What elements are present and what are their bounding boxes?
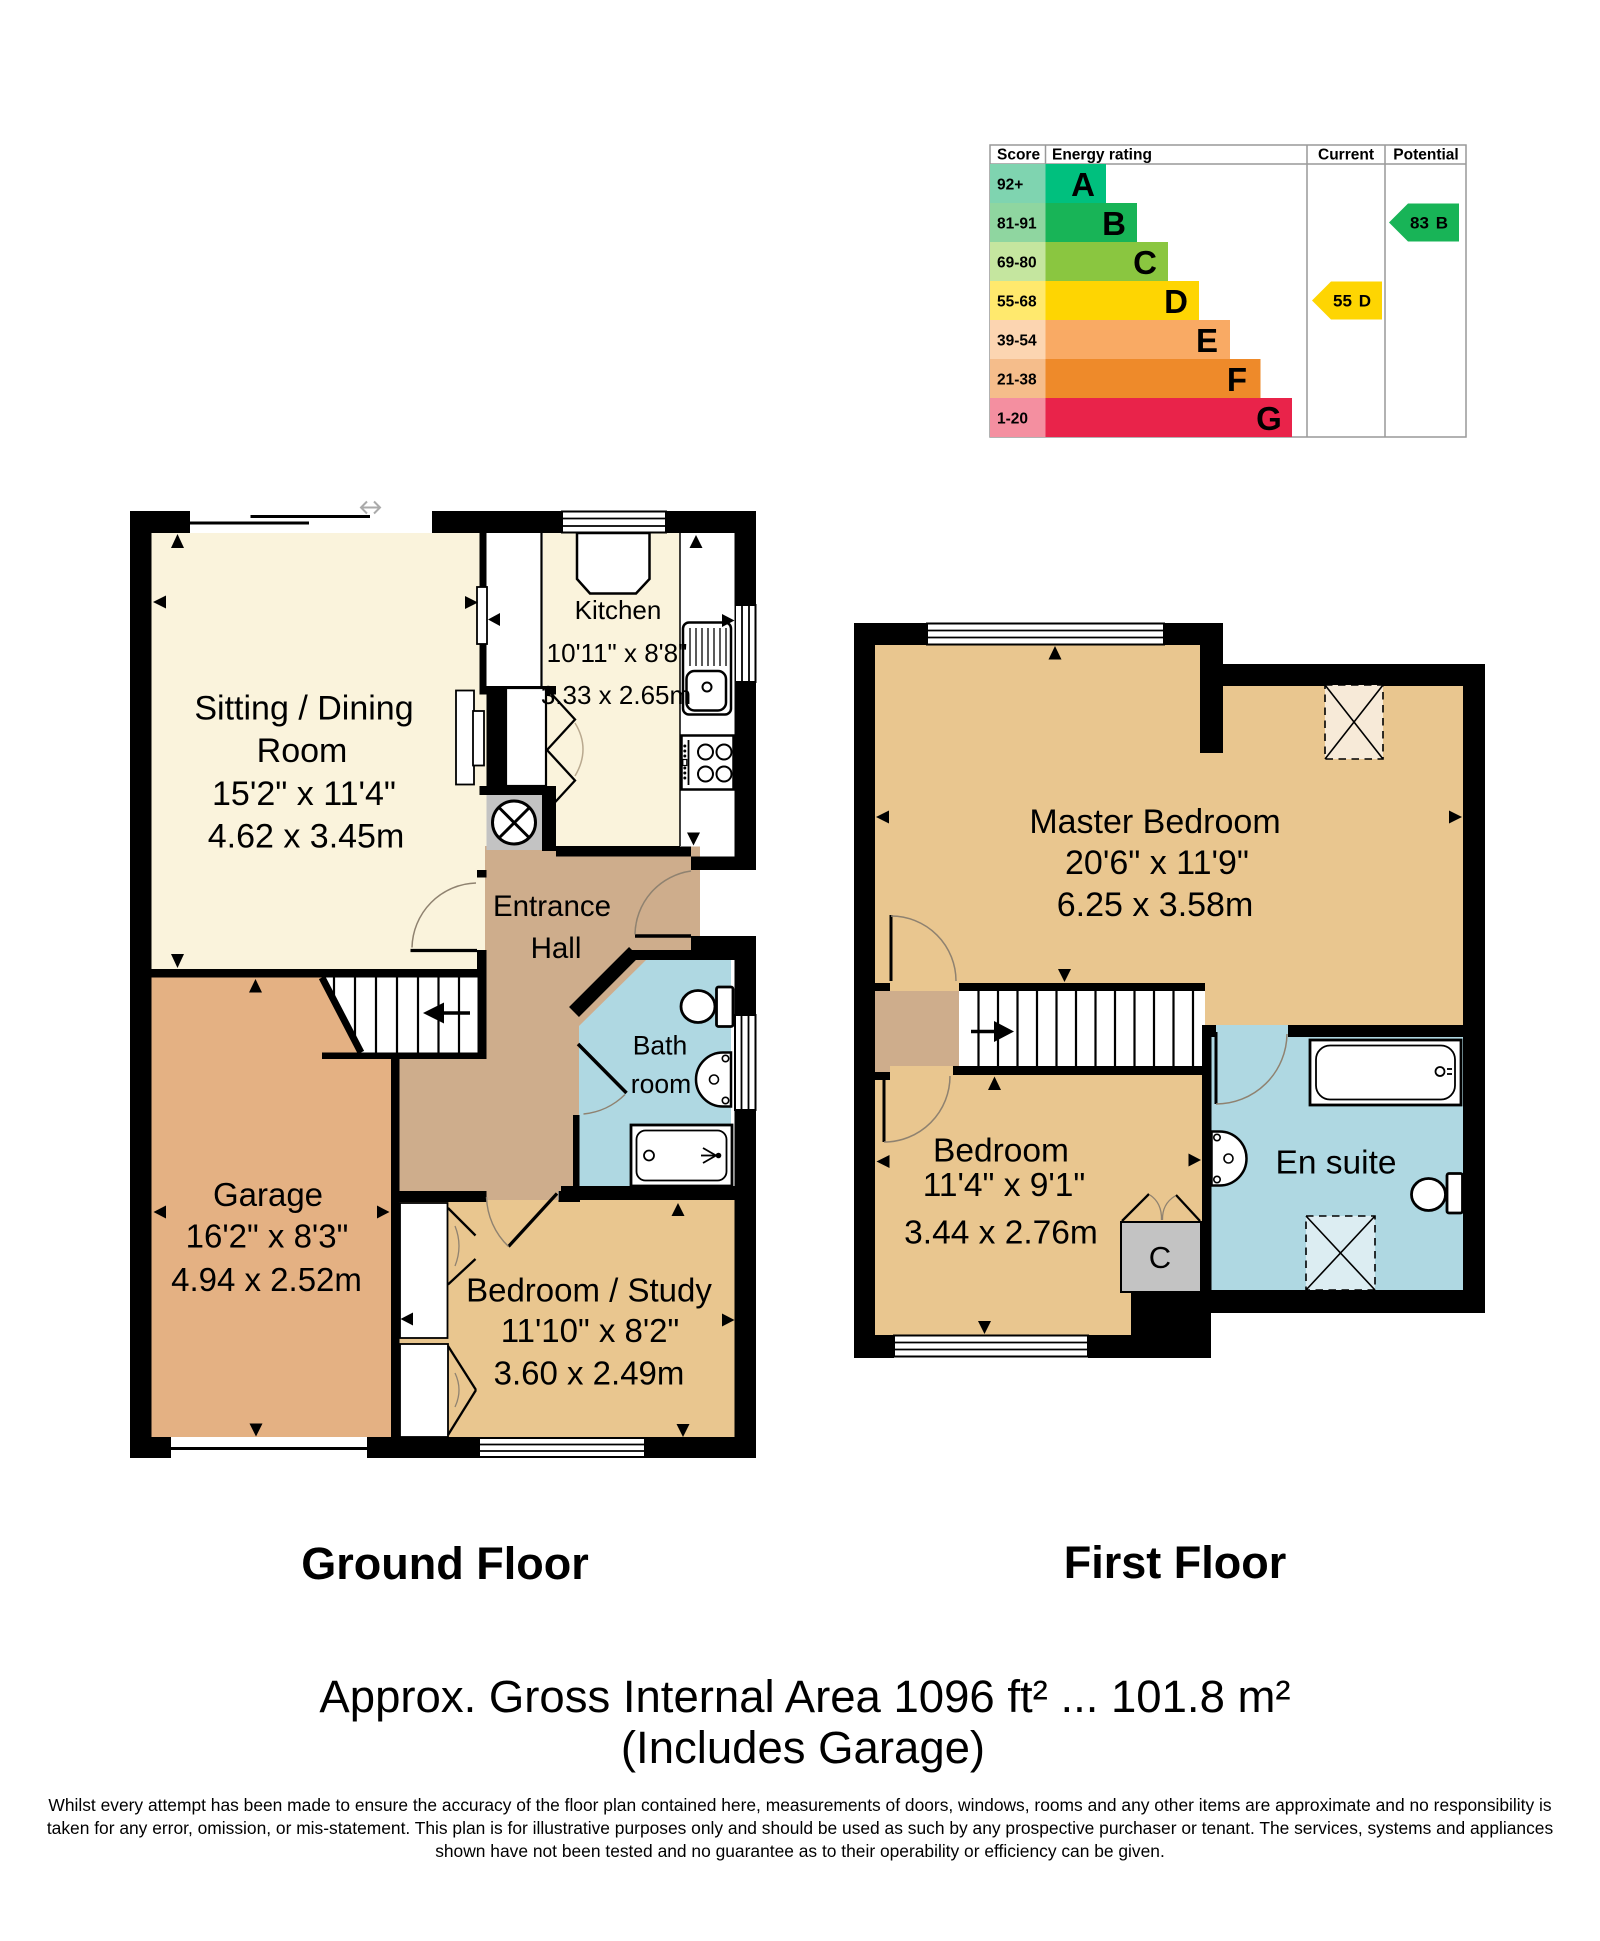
svg-text:Kitchen: Kitchen xyxy=(575,595,662,625)
svg-text:Master Bedroom: Master Bedroom xyxy=(1029,803,1280,841)
svg-text:taken for any error, omission,: taken for any error, omission, or mis-st… xyxy=(47,1818,1554,1838)
svg-text:Room: Room xyxy=(257,732,348,770)
svg-text:3.33 x 2.65m: 3.33 x 2.65m xyxy=(541,680,691,710)
svg-text:Whilst every attempt has been: Whilst every attempt has been made to en… xyxy=(48,1795,1551,1815)
svg-text:Bath: Bath xyxy=(633,1031,688,1061)
svg-text:Energy rating: Energy rating xyxy=(1052,147,1152,164)
svg-text:3.60 x 2.49m: 3.60 x 2.49m xyxy=(494,1355,685,1392)
svg-text:6.25 x 3.58m: 6.25 x 3.58m xyxy=(1057,886,1254,924)
svg-text:room: room xyxy=(631,1069,691,1099)
svg-text:20'6" x 11'9": 20'6" x 11'9" xyxy=(1065,844,1249,882)
svg-text:First Floor: First Floor xyxy=(1064,1537,1287,1588)
svg-text:Approx. Gross Internal Area 10: Approx. Gross Internal Area 1096 ft² ...… xyxy=(319,1671,1290,1722)
svg-text:83 B: 83 B xyxy=(1410,214,1448,233)
svg-text:11'10" x 8'2": 11'10" x 8'2" xyxy=(501,1312,680,1349)
svg-text:shown have not been tested and: shown have not been tested and no guaran… xyxy=(435,1841,1165,1861)
svg-text:Potential: Potential xyxy=(1393,147,1458,164)
svg-text:Ground Floor: Ground Floor xyxy=(301,1538,588,1589)
svg-text:A: A xyxy=(1071,166,1095,203)
svg-text:1-20: 1-20 xyxy=(997,411,1028,428)
svg-text:C: C xyxy=(1149,1240,1171,1275)
svg-text:G: G xyxy=(1256,400,1282,437)
svg-text:Garage: Garage xyxy=(213,1176,323,1213)
svg-text:Entrance: Entrance xyxy=(493,890,611,923)
svg-text:55 D: 55 D xyxy=(1333,292,1371,311)
svg-text:Bedroom: Bedroom xyxy=(933,1133,1069,1170)
svg-text:D: D xyxy=(1164,283,1188,320)
svg-text:Bedroom / Study: Bedroom / Study xyxy=(466,1272,712,1309)
svg-text:(Includes Garage): (Includes Garage) xyxy=(621,1722,985,1773)
svg-text:39-54: 39-54 xyxy=(997,333,1037,350)
svg-text:92+: 92+ xyxy=(997,177,1023,194)
svg-text:F: F xyxy=(1227,361,1247,398)
svg-text:15'2" x 11'4": 15'2" x 11'4" xyxy=(212,775,396,813)
svg-text:En suite: En suite xyxy=(1275,1145,1396,1182)
svg-text:10'11" x 8'8": 10'11" x 8'8" xyxy=(547,638,688,668)
svg-text:4.94 x 2.52m: 4.94 x 2.52m xyxy=(171,1261,362,1298)
svg-text:B: B xyxy=(1102,205,1126,242)
svg-text:Sitting / Dining: Sitting / Dining xyxy=(194,690,413,728)
svg-text:55-68: 55-68 xyxy=(997,294,1037,311)
svg-text:Score: Score xyxy=(997,147,1040,164)
svg-text:81-91: 81-91 xyxy=(997,216,1037,233)
svg-text:11'4" x 9'1": 11'4" x 9'1" xyxy=(923,1167,1086,1204)
svg-text:16'2" x 8'3": 16'2" x 8'3" xyxy=(186,1218,349,1255)
svg-text:69-80: 69-80 xyxy=(997,255,1037,272)
svg-text:E: E xyxy=(1196,322,1218,359)
svg-text:Current: Current xyxy=(1318,147,1374,164)
svg-text:3.44 x 2.76m: 3.44 x 2.76m xyxy=(904,1215,1098,1252)
svg-text:C: C xyxy=(1133,244,1157,281)
svg-text:Hall: Hall xyxy=(531,932,582,965)
svg-text:4.62 x 3.45m: 4.62 x 3.45m xyxy=(208,818,405,856)
svg-text:21-38: 21-38 xyxy=(997,372,1037,389)
